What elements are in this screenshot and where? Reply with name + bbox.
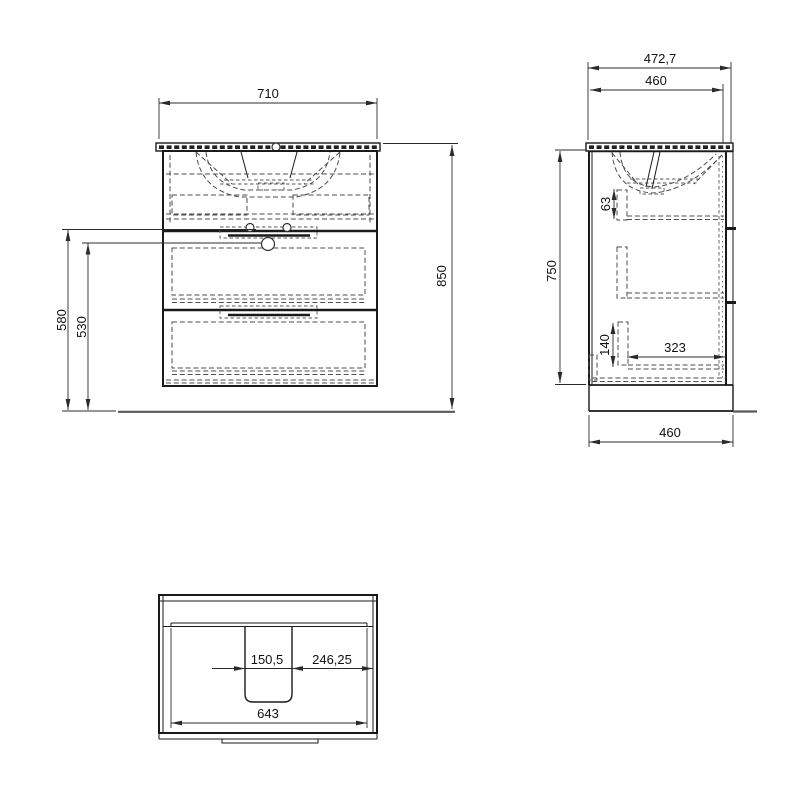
- side-drawer2-back: [617, 247, 627, 298]
- front-handle-1: [220, 227, 317, 238]
- dim-side-323: 323: [627, 340, 725, 357]
- side-basin-hidden-outline: [612, 152, 722, 194]
- dim-side-height: 750: [544, 150, 586, 385]
- front-hole-left: [246, 224, 254, 232]
- front-hole-right: [283, 224, 291, 232]
- bottom-plinth-tab: [222, 739, 318, 743]
- dim-label-150-5: 150,5: [251, 652, 284, 667]
- dim-side-depth-bottom: 460: [589, 415, 733, 447]
- side-back-bracket: [589, 355, 597, 380]
- side-view: 472,7 460 750 63 140 323: [544, 51, 757, 447]
- dim-label-580: 580: [54, 309, 69, 331]
- dim-label-750: 750: [544, 260, 559, 282]
- side-bracket-2: [726, 301, 736, 304]
- dim-side-depth-total: 472,7: [588, 51, 731, 143]
- side-drawer1-back: [617, 190, 627, 220]
- dim-label-460-top: 460: [645, 73, 667, 88]
- dim-label-63: 63: [598, 197, 613, 211]
- dim-label-460-bottom: 460: [659, 425, 681, 440]
- front-cabinet-outline: [163, 151, 377, 386]
- dim-bottom-width: 643: [171, 628, 367, 728]
- front-handle-2: [220, 306, 317, 318]
- bottom-view: 150,5 246,25 643: [159, 595, 377, 743]
- front-drawer2-box: [172, 248, 365, 295]
- dim-front-530: 530: [74, 243, 261, 410]
- side-countertop: [586, 143, 733, 151]
- side-drawer3-back: [618, 322, 628, 365]
- dim-label-530: 530: [74, 316, 89, 338]
- front-faucet-hole: [272, 143, 280, 151]
- dim-label-140: 140: [597, 334, 612, 356]
- dim-side-140: 140: [597, 323, 613, 367]
- bottom-front-channel: [163, 623, 373, 627]
- front-view: 710 850 580 530: [54, 86, 458, 412]
- dim-label-246-25: 246,25: [312, 652, 352, 667]
- dim-front-total-height: 850: [383, 144, 458, 410]
- side-bracket-1: [726, 227, 736, 230]
- front-siphon-hole: [262, 238, 275, 251]
- front-hidden-interior: [166, 155, 374, 383]
- front-floor-line: [62, 411, 455, 412]
- dim-side-depth-cabinet: 460: [590, 73, 723, 143]
- front-drawer3-box: [172, 322, 365, 368]
- side-plinth-base: [589, 385, 757, 412]
- dim-front-width: 710: [159, 86, 377, 139]
- dim-label-850: 850: [434, 265, 449, 287]
- dim-side-63: 63: [598, 189, 614, 219]
- dim-label-710: 710: [257, 86, 279, 101]
- dim-label-472-7: 472,7: [644, 51, 677, 66]
- dim-label-323: 323: [664, 340, 686, 355]
- dim-label-643: 643: [257, 706, 279, 721]
- drawing-sheet: 710 850 580 530: [0, 0, 800, 800]
- drawing-svg: 710 850 580 530: [0, 0, 800, 800]
- bottom-plinth-band: [159, 733, 377, 743]
- front-countertop: [156, 143, 380, 151]
